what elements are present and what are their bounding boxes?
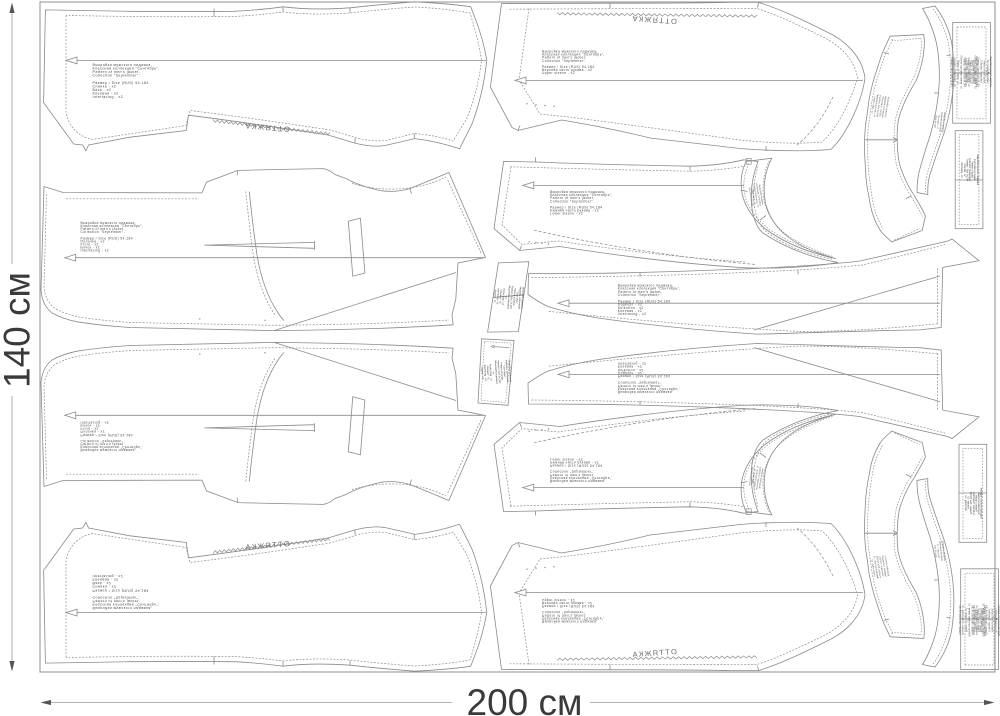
svg-text:Обтачка горловины спинки - х2: Обтачка горловины спинки - х2 (973, 55, 975, 89)
svg-text:Размер / Size (RUS) 54,184: Размер / Size (RUS) 54,184 (977, 58, 979, 88)
svg-text:Обтачка горловины спинки - х2: Обтачка горловины спинки - х2 (959, 55, 961, 89)
svg-text:Collection "September".: Collection "September". (618, 293, 662, 297)
svg-text:Piping - х2 Подзор - х2: Piping - х2 Подзор - х2 (956, 60, 958, 84)
svg-text:Клеевая - х2 Interfacing - х2: Клеевая - х2 Interfacing - х2 (953, 57, 956, 87)
svg-text:Interfacing - х2: Interfacing - х2 (93, 95, 124, 99)
svg-text:Pattern of men's jacket,: Pattern of men's jacket, (983, 60, 986, 84)
svg-text:Collection "September".: Collection "September". (542, 59, 586, 63)
svg-text:Collection "September".: Collection "September". (968, 158, 971, 183)
svg-text:Collection "September".: Collection "September". (980, 60, 983, 85)
svg-text:Выкройка мужского пиджака,: Выкройка мужского пиджака, (976, 154, 979, 185)
svg-text:Interfacing - х2: Interfacing - х2 (960, 162, 963, 178)
svg-text:Piping - х2 Подзор - х2: Piping - х2 Подзор - х2 (970, 60, 972, 84)
svg-text:Клеевая - х2 Interfacing - х2: Клеевая - х2 Interfacing - х2 (967, 57, 970, 87)
svg-text:Interfacing - х2: Interfacing - х2 (618, 312, 647, 316)
svg-text:Collection "September".: Collection "September". (81, 230, 125, 234)
svg-text:140 см: 140 см (0, 272, 38, 388)
svg-text:Collection "September".: Collection "September". (93, 74, 141, 78)
svg-text:Collection "September".: Collection "September". (550, 199, 594, 203)
svg-text:Lower sleeve - х2: Lower sleeve - х2 (550, 212, 583, 216)
svg-text:Размер / Size (RUS) 54,184: Размер / Size (RUS) 54,184 (950, 58, 952, 88)
svg-text:Коллекция "Сентябрь",: Коллекция "Сентябрь", (986, 60, 988, 85)
svg-text:Upper sleeve - х2: Upper sleeve - х2 (542, 71, 575, 75)
svg-text:200 см: 200 см (467, 682, 583, 716)
svg-text:Выкройка мужского пиджака,: Выкройка мужского пиджака, (989, 56, 992, 87)
svg-text:Interfacing - х2: Interfacing - х2 (81, 248, 110, 252)
svg-text:Размер / Size (RUS) 54,184: Размер / Size (RUS) 54,184 (964, 58, 966, 88)
svg-text:Pattern of jacket,: Pattern of jacket, (971, 161, 974, 179)
